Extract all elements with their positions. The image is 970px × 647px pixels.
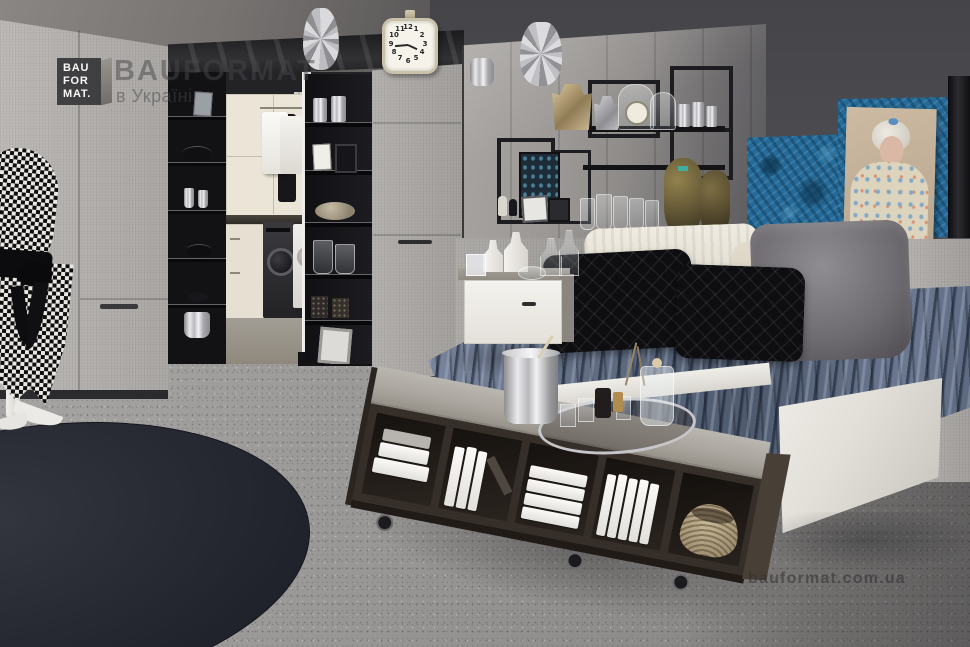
clock-numeral: 5 (414, 54, 419, 62)
frosted-jar (466, 254, 486, 276)
canister (331, 96, 346, 122)
shelf-board (168, 258, 226, 262)
corner-display-shelf (305, 74, 373, 364)
shelf-board (305, 274, 373, 279)
caster-wheel (375, 513, 395, 533)
clock-numeral: 3 (423, 40, 428, 48)
metal-ornament (470, 58, 494, 86)
logo-cube-face: BAU FOR MAT. (57, 58, 101, 105)
showroom-photo: 12 1 2 3 4 5 6 7 8 9 10 11 (0, 0, 970, 647)
tshirt-white (280, 116, 302, 174)
glass-cloche (650, 92, 676, 130)
shelf-black-bowl (186, 244, 212, 257)
nightstand-side (560, 274, 574, 342)
nightstand-drawer (464, 280, 562, 344)
bucket-rim (502, 348, 560, 358)
clock-hand-hour (408, 44, 418, 50)
canister (706, 106, 717, 127)
shelf-champagne-bucket (184, 312, 210, 338)
washer-door (267, 248, 295, 276)
brand-watermark-subtitle: в Україні (116, 86, 193, 107)
framed-photo (335, 144, 357, 173)
basket-opening (691, 505, 735, 527)
cabinet-mid-seam (373, 234, 461, 236)
pillow-black-quilted (674, 264, 805, 362)
shelf-goblet (198, 190, 208, 208)
canister (313, 98, 327, 122)
shelf-mirror-frame (193, 91, 213, 116)
shelf-board (305, 320, 373, 325)
patterned-box (332, 298, 349, 318)
canister (692, 102, 704, 127)
frame-shelf-board (583, 165, 725, 170)
bench-cell (668, 472, 754, 566)
washer-controls (266, 228, 290, 232)
clock-numeral: 2 (420, 31, 425, 39)
logo-line-3: MAT. (63, 88, 101, 101)
silver-picture-frame (317, 327, 352, 364)
clock-numeral: 7 (398, 54, 403, 62)
canister (678, 104, 690, 127)
wine-glass (613, 196, 628, 230)
shelf-goblet (184, 188, 194, 208)
shelf-board (305, 122, 373, 127)
brand-watermark-title: BAUFORMAT (114, 55, 317, 88)
logo-line-1: BAU (63, 62, 101, 75)
glass-bowl (518, 266, 546, 280)
clock-numeral: 6 (406, 57, 411, 65)
nightstand-handle (522, 302, 536, 306)
nightstand (458, 268, 574, 350)
cabinet-mid-handle (398, 240, 432, 244)
clock-hand-minute (395, 44, 408, 47)
decanter-stopper (652, 358, 662, 368)
shelf-dark-bowl (188, 292, 208, 302)
portrait-ribbon (888, 118, 898, 125)
glass-cloche (618, 84, 654, 130)
metal-bowl (315, 202, 355, 220)
woven-basket (676, 499, 743, 561)
wine-glass (596, 194, 612, 230)
whiskey-decanter (640, 366, 674, 426)
crystal-vase (335, 244, 355, 274)
alarm-clock: 12 1 2 3 4 5 6 7 8 9 10 11 (381, 10, 439, 74)
cabinet-column-mid (372, 64, 462, 382)
figurine (498, 196, 507, 216)
clock-numeral: 4 (420, 48, 425, 56)
shelf-black-bowl (182, 146, 212, 161)
caster-wheel (565, 551, 585, 571)
framed-card (312, 144, 331, 171)
dark-flask (595, 388, 611, 418)
figurine (509, 199, 517, 216)
clock-numeral: 11 (395, 25, 405, 33)
washer-dark (263, 222, 293, 318)
crystal-vase-large (520, 22, 562, 86)
clock-numeral: 1 (414, 25, 419, 33)
shelf-board (305, 222, 373, 227)
patterned-box (311, 296, 328, 318)
clock-numeral: 8 (392, 48, 397, 56)
clock-numeral: 9 (389, 40, 394, 48)
wine-glass (580, 198, 595, 230)
shelf-board (168, 162, 226, 166)
hanging-rail (260, 107, 308, 109)
shelf-board (168, 116, 226, 120)
cabinet-mid-seam (373, 122, 461, 124)
leaning-board (486, 456, 512, 496)
tumbler (578, 398, 594, 422)
drawer-handle (230, 272, 240, 274)
ledge-photo-frame (521, 195, 549, 223)
shelf-board (168, 210, 226, 214)
vase-label (678, 166, 688, 171)
tumbler (560, 404, 576, 427)
drawer-handle (230, 238, 240, 240)
ledge-photo-frame (548, 198, 570, 222)
caster-wheel (671, 572, 691, 592)
brand-logo-cube: BAU FOR MAT. (57, 58, 115, 105)
wardrobe-left-seam (80, 298, 168, 300)
wine-glass (629, 198, 644, 230)
logo-cube-side (101, 58, 112, 106)
crystal-vase (313, 240, 333, 274)
clock-body: 12 1 2 3 4 5 6 7 8 9 10 11 (382, 18, 438, 74)
shelf-board (168, 304, 226, 308)
logo-line-2: FOR (63, 75, 101, 88)
cloche-clock (625, 101, 649, 125)
watermark-url: bauformat.com.ua (748, 570, 906, 588)
black-cylinder-vase (948, 76, 970, 238)
wardrobe-door-handle (100, 304, 138, 309)
bed-floor-shadow (750, 512, 970, 572)
gold-bottle (613, 392, 623, 412)
ice-bucket (504, 352, 558, 424)
